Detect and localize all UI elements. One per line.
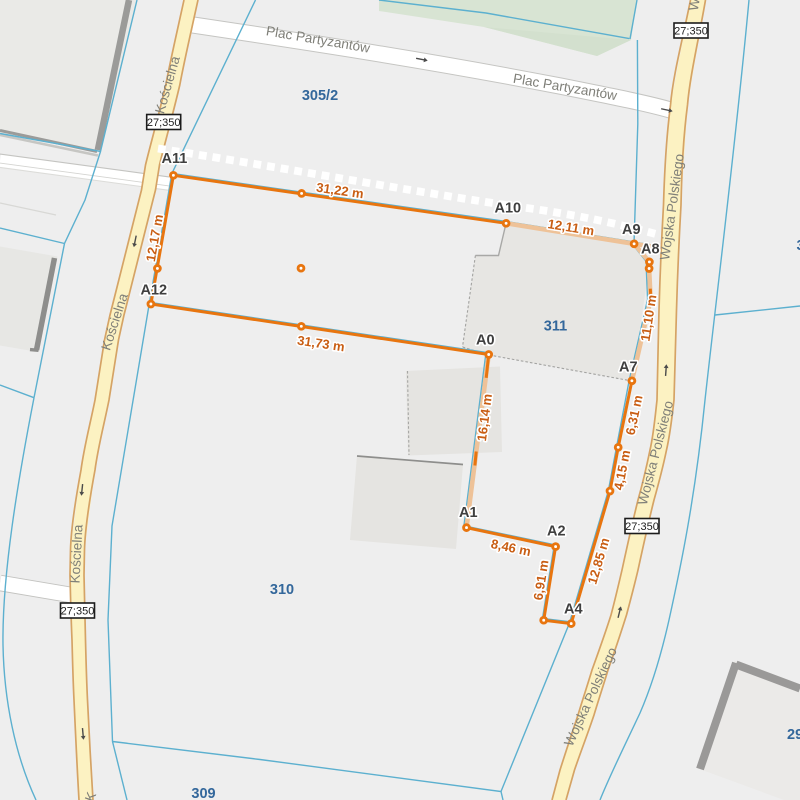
svg-text:A10: A10 xyxy=(495,201,522,217)
svg-text:A11: A11 xyxy=(162,151,188,167)
svg-text:27;350: 27;350 xyxy=(674,25,708,37)
svg-text:311: 311 xyxy=(544,319,567,335)
svg-text:A1: A1 xyxy=(459,505,478,521)
svg-text:A12: A12 xyxy=(141,283,168,299)
svg-text:305/2: 305/2 xyxy=(302,88,338,104)
svg-text:309: 309 xyxy=(191,786,215,800)
svg-text:27;350: 27;350 xyxy=(625,521,659,533)
svg-text:27;350: 27;350 xyxy=(61,605,95,617)
svg-text:A0: A0 xyxy=(476,333,495,349)
svg-text:3: 3 xyxy=(797,238,800,254)
svg-text:29: 29 xyxy=(787,727,800,743)
svg-text:310: 310 xyxy=(270,582,294,598)
svg-text:27;350: 27;350 xyxy=(147,117,181,129)
svg-text:A9: A9 xyxy=(622,222,641,238)
svg-text:A7: A7 xyxy=(619,360,638,376)
svg-text:A4: A4 xyxy=(564,602,583,618)
svg-text:Kościelna: Kościelna xyxy=(67,524,85,584)
svg-text:A8: A8 xyxy=(641,242,660,258)
svg-text:A2: A2 xyxy=(547,524,566,540)
